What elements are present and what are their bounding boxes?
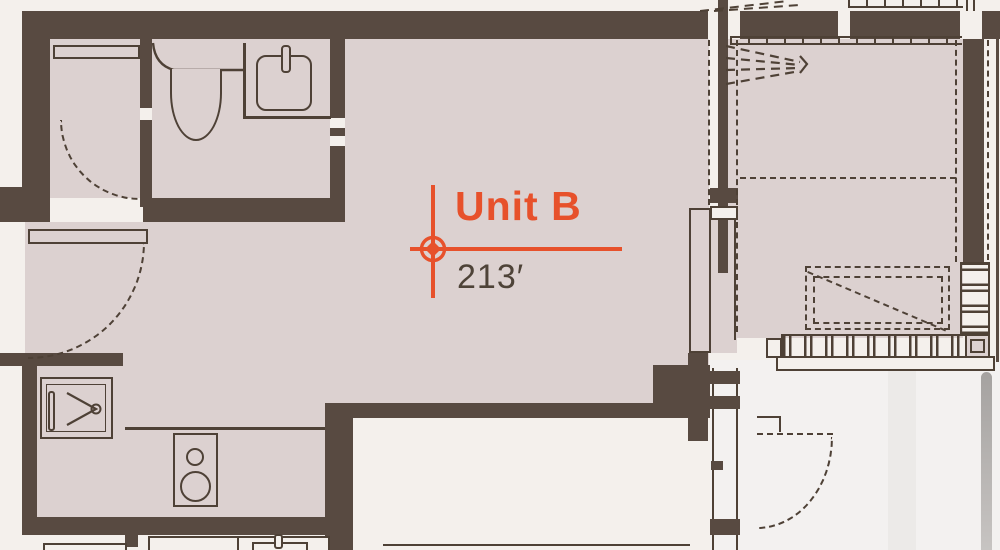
wall-left-block: [0, 187, 50, 222]
wall-gap-top-1: [838, 11, 850, 39]
wall-spine-lower: [688, 353, 708, 441]
balcony-edge-band: [776, 356, 995, 371]
bath-door-notch-1: [330, 118, 345, 128]
cooktop-burner-small: [186, 448, 204, 466]
overhead-dashed-line-right-b: [736, 222, 738, 332]
topright-tick-1: [966, 0, 968, 11]
divider-notch: [140, 108, 152, 120]
balcony-door-line: [757, 433, 833, 435]
bedroom-dashed-line-x956: [955, 40, 957, 262]
wall-entry-stub: [0, 353, 123, 366]
wall-jamb-stub: [710, 188, 738, 203]
outside-stripe: [888, 367, 916, 550]
topright-tick-2: [973, 0, 975, 11]
kitchen-faucet-symbol: [60, 388, 108, 432]
overhead-dashed-line-left: [708, 40, 710, 205]
bath-door-notch-2: [330, 136, 345, 146]
unit-name-label: Unit B: [455, 183, 582, 230]
cooktop-burner-large: [180, 471, 211, 502]
crosshair-icon: [415, 231, 451, 267]
wall-mid: [143, 198, 345, 222]
duct-shaft: [689, 208, 711, 353]
bedroom-edge-line: [734, 218, 736, 340]
overhead-cone-symbol-top: [700, 0, 810, 12]
neighbor-counter-divider: [237, 536, 239, 550]
overhead-cone-symbol: [726, 42, 816, 92]
outside-area-bottom-right: [710, 360, 1000, 550]
sink-counter-vline: [243, 43, 246, 118]
kitchen-drainer: [48, 391, 55, 431]
unit-area-label: 213′: [457, 258, 524, 297]
neighbor-faucet: [274, 534, 283, 549]
floor-plan: Unit B 213′: [0, 0, 1000, 550]
louver-left-box: [766, 338, 782, 358]
wall-right-edge: [996, 11, 999, 362]
doorframe-hook-v: [779, 416, 781, 432]
doorframe-hook-h: [757, 416, 781, 418]
neighbor-window-strip: [848, 0, 963, 8]
counter-edge-line: [125, 427, 325, 430]
gray-rail-bar: [981, 372, 992, 550]
wall-spine-upper: [718, 0, 728, 273]
neighbor-counter-left: [43, 543, 127, 550]
wall-gap-spine-right: [728, 11, 740, 39]
wall-top: [22, 11, 1000, 39]
balcony-louver-horizontal: [781, 334, 967, 358]
glass-wall-block-2: [710, 396, 740, 409]
wall-right-column: [963, 35, 984, 265]
wall-bath-right: [330, 39, 345, 222]
glass-wall-block-4: [710, 519, 740, 535]
wall-left-lower: [22, 366, 37, 535]
louver-corner-inner: [970, 339, 985, 353]
bottomroom-edge-line: [383, 544, 690, 546]
wall-left: [22, 11, 50, 198]
wall-gap-spine-left: [708, 11, 718, 39]
bedroom-dashed-line-mid: [740, 177, 956, 179]
glass-wall-block-1: [710, 371, 740, 384]
wall-bottomroom-left: [325, 403, 353, 550]
bath-faucet: [281, 45, 291, 73]
wall-bottom: [30, 517, 353, 535]
sink-counter-hline: [243, 116, 331, 119]
glass-wall-block-3: [711, 461, 723, 470]
closet-shelf: [53, 45, 140, 59]
bedroom-dashed-line-x988: [987, 40, 989, 260]
wall-gap-top-2: [960, 11, 982, 39]
wall-topright-connector: [982, 16, 997, 36]
balcony-louver-vertical: [960, 262, 990, 336]
